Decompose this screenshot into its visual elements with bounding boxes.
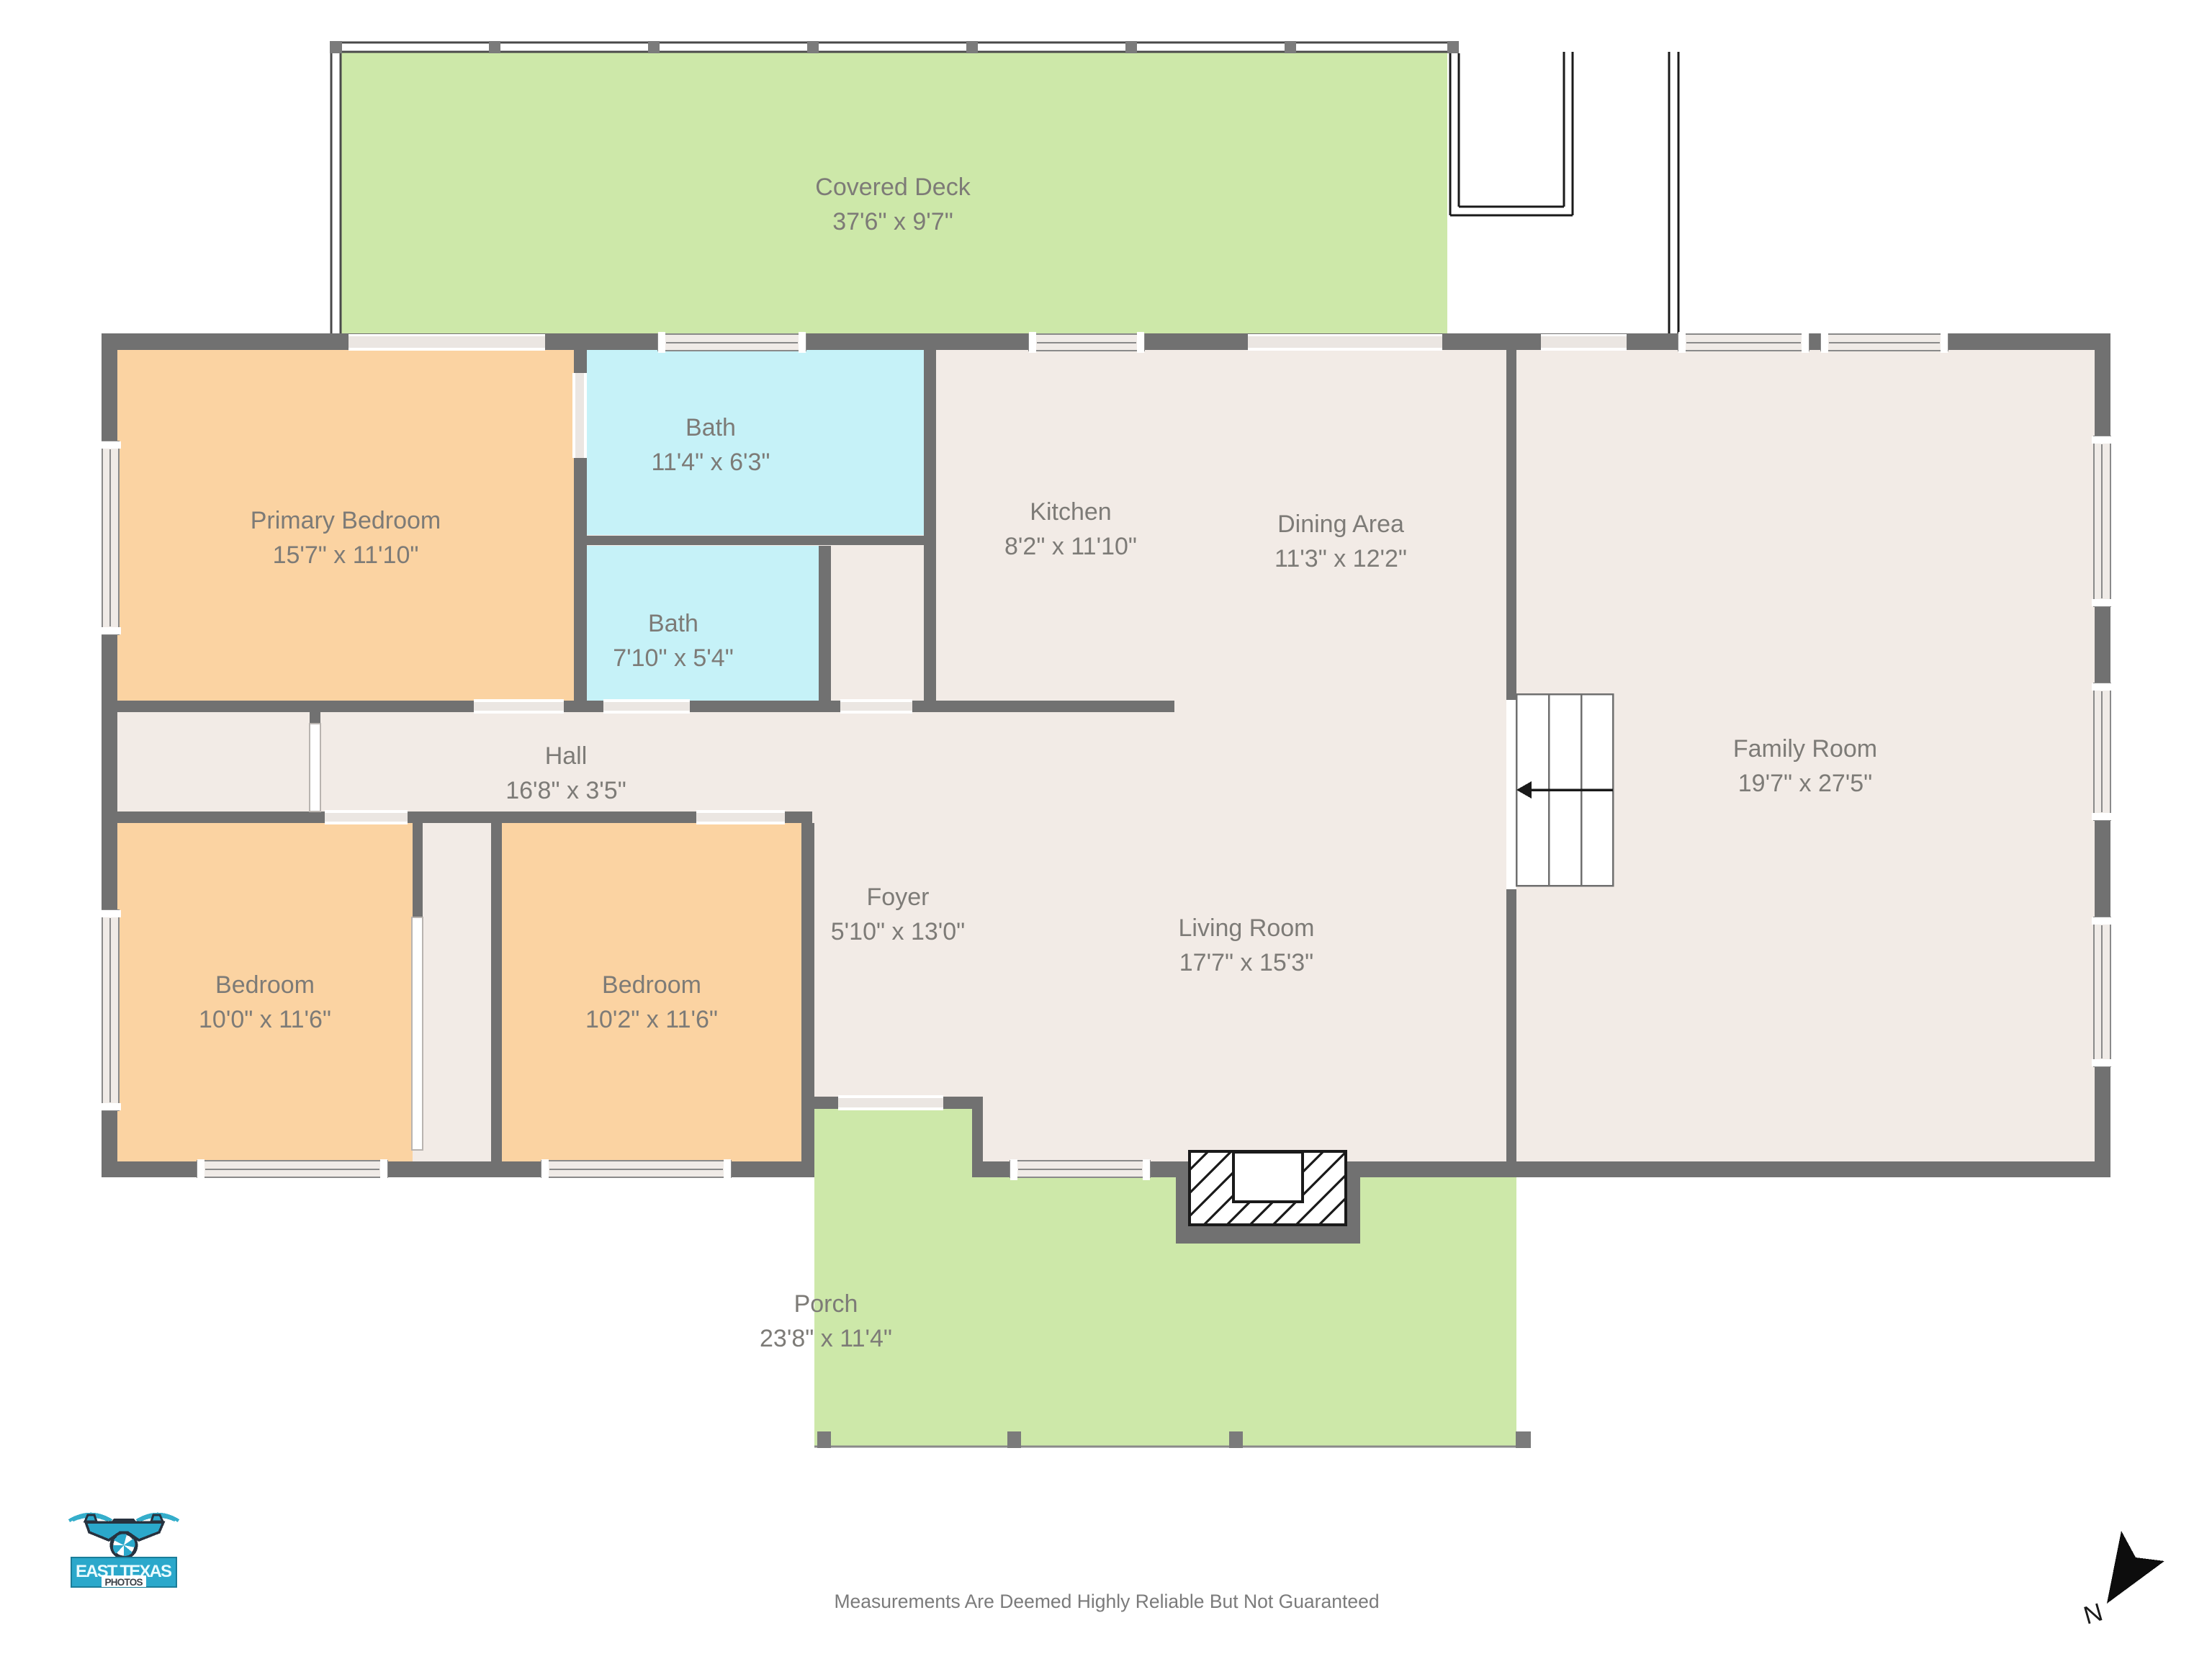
- svg-text:11'3" x 12'2": 11'3" x 12'2": [1274, 545, 1407, 572]
- svg-text:23'8" x 11'4": 23'8" x 11'4": [760, 1325, 892, 1352]
- svg-text:Bedroom: Bedroom: [215, 971, 315, 999]
- svg-text:Primary Bedroom: Primary Bedroom: [251, 507, 441, 534]
- svg-text:Measurements Are Deemed Highly: Measurements Are Deemed Highly Reliable …: [834, 1591, 1379, 1612]
- svg-text:Bedroom: Bedroom: [602, 971, 701, 999]
- svg-text:PHOTOS: PHOTOS: [105, 1577, 143, 1588]
- svg-text:Family Room: Family Room: [1733, 735, 1877, 763]
- svg-text:19'7" x 27'5": 19'7" x 27'5": [1738, 770, 1872, 797]
- svg-text:15'7" x 11'10": 15'7" x 11'10": [273, 541, 419, 569]
- svg-text:8'2" x 11'10": 8'2" x 11'10": [1004, 533, 1137, 560]
- svg-text:Bath: Bath: [648, 610, 698, 637]
- svg-text:Bath: Bath: [685, 414, 736, 441]
- svg-text:10'2" x 11'6": 10'2" x 11'6": [585, 1006, 718, 1033]
- svg-text:Hall: Hall: [545, 742, 588, 770]
- svg-text:Dining Area: Dining Area: [1277, 511, 1404, 538]
- svg-text:11'4" x 6'3": 11'4" x 6'3": [651, 449, 770, 476]
- svg-text:Porch: Porch: [794, 1290, 858, 1318]
- svg-text:7'10" x 5'4": 7'10" x 5'4": [613, 644, 734, 672]
- svg-text:5'10" x 13'0": 5'10" x 13'0": [831, 918, 965, 945]
- svg-text:10'0" x 11'6": 10'0" x 11'6": [199, 1006, 331, 1033]
- svg-text:17'7" x 15'3": 17'7" x 15'3": [1179, 949, 1313, 976]
- svg-text:16'8" x 3'5": 16'8" x 3'5": [505, 777, 626, 804]
- svg-text:Kitchen: Kitchen: [1030, 498, 1111, 526]
- svg-text:Covered Deck: Covered Deck: [815, 174, 971, 201]
- svg-text:Foyer: Foyer: [867, 884, 930, 911]
- svg-text:Living Room: Living Room: [1179, 914, 1315, 942]
- svg-text:37'6" x 9'7": 37'6" x 9'7": [832, 208, 953, 235]
